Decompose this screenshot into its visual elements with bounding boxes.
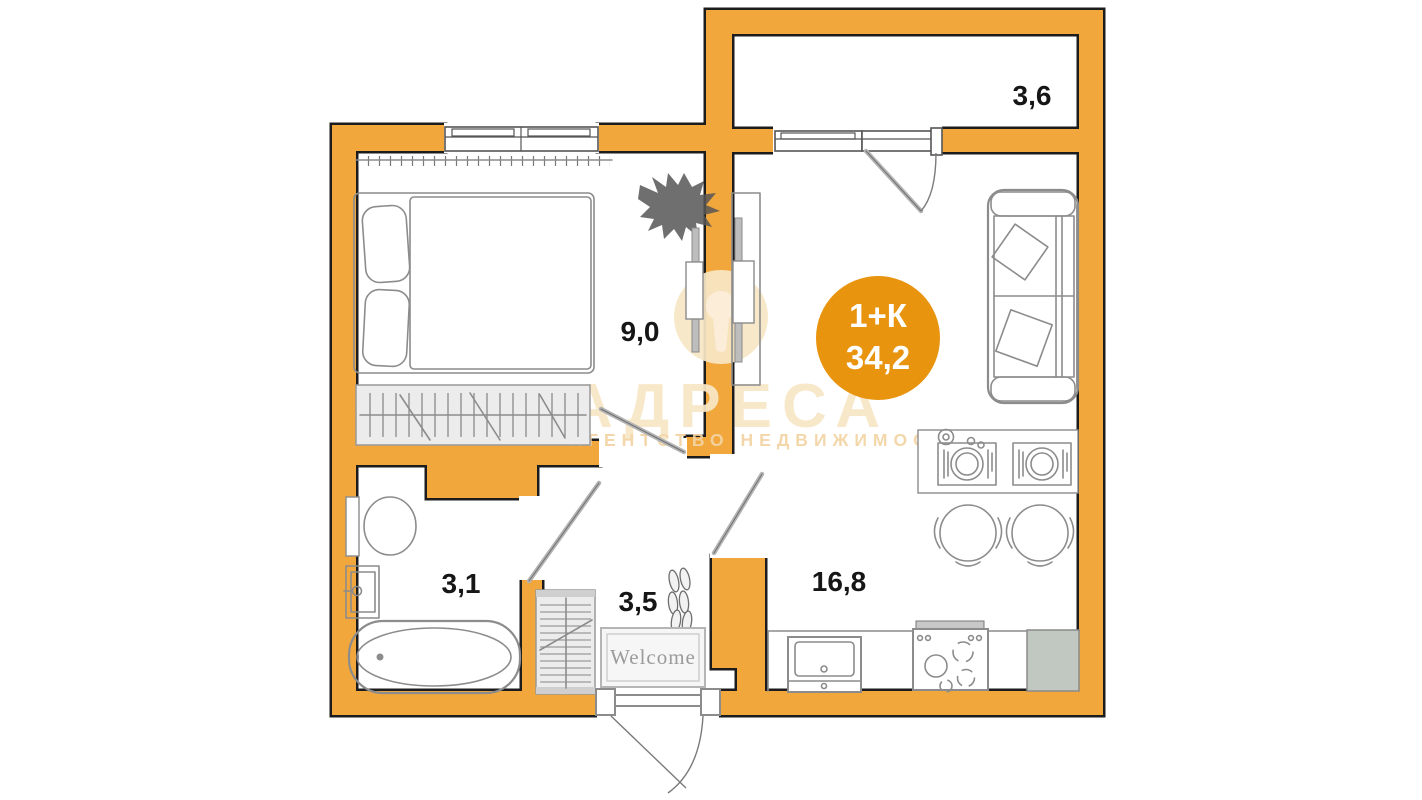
dining-chair [1006,505,1073,566]
hallway-closet [536,590,595,694]
balcony-door [862,128,942,211]
stove [913,621,988,692]
bathtub [349,621,520,693]
badge-circle [816,276,940,400]
sofa-pillow [992,224,1048,280]
room-label-kitchen-living: 16,8 [812,566,867,597]
bedroom-window [445,127,598,151]
double-bed [354,193,594,373]
toilet [346,497,416,556]
entrance-door [596,689,720,793]
doormat: Welcome [601,628,705,687]
bedroom-tv-mount [686,262,703,319]
area-badge: 1+К 34,2 [816,276,940,400]
floor-plan: АДРЕСА АГЕНТСТВО НЕДВИЖИМОСТИ [0,0,1422,800]
room-label-hallway: 3,5 [619,586,658,617]
dining-table [918,430,1078,494]
living-tv-mount [733,261,754,323]
badge-area-label: 34,2 [846,339,910,376]
floor-plan-canvas: АДРЕСА АГЕНТСТВО НЕДВИЖИМОСТИ [0,0,1422,800]
watermark-tagline-text: АГЕНТСТВО НЕДВИЖИМОСТИ [569,430,966,450]
badge-type-label: 1+К [849,297,908,334]
sofa-pillow [996,310,1052,366]
kitchen-sink [788,637,861,692]
wardrobe [356,385,590,445]
balcony-window [775,131,862,151]
sofa [988,190,1078,403]
room-label-bedroom: 9,0 [621,316,660,347]
room-label-bathroom: 3,1 [442,568,481,599]
room-label-balcony: 3,6 [1013,80,1052,111]
dining-chair [934,505,1001,566]
doormat-label: Welcome [610,645,696,669]
refrigerator [1027,630,1079,691]
shoes-icon [667,567,693,633]
